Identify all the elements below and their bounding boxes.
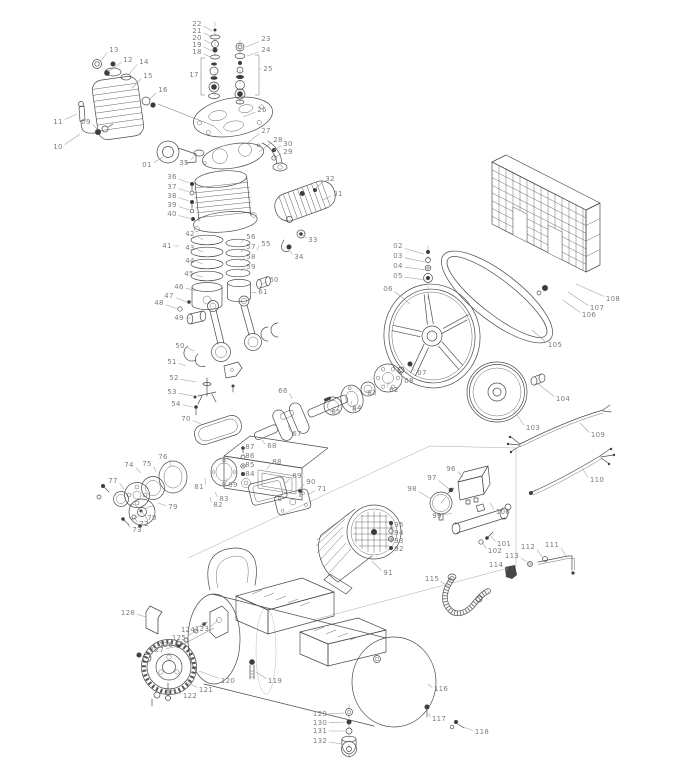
aftercooler — [492, 155, 600, 295]
part-number: 57 — [246, 243, 256, 251]
part-callout-55: 55 — [257, 240, 271, 250]
mounting-plate-lower — [300, 618, 386, 666]
part-callout-86: 86 — [243, 452, 255, 460]
part-number: 123 — [195, 625, 209, 633]
leader-line — [197, 249, 203, 252]
part-callout-27: 27 — [248, 127, 271, 143]
piston-left — [178, 283, 222, 325]
leader-line — [191, 153, 196, 161]
part-number: 122 — [183, 692, 197, 700]
part-callout-01: 01 — [142, 157, 163, 169]
leader-line — [323, 196, 331, 200]
part-callout-43: 43 — [185, 244, 203, 252]
part-number: 12 — [123, 56, 133, 64]
leader-line — [199, 671, 219, 679]
part-number: 77 — [108, 477, 118, 485]
pressure-switch — [458, 466, 490, 504]
parts-diagram-canvas: 0102030405060708091011121314151617181920… — [0, 0, 686, 768]
part-number: 40 — [167, 210, 177, 218]
leader-line — [576, 284, 604, 297]
part-number: 131 — [313, 727, 327, 735]
leader-line — [193, 421, 201, 425]
leader-line — [205, 478, 206, 485]
part-number: 54 — [171, 400, 181, 408]
part-number: 127 — [150, 646, 164, 654]
part-number: 64 — [352, 404, 362, 412]
leader-line — [482, 542, 486, 549]
leader-line — [532, 330, 546, 343]
part-callout-117: 117 — [429, 713, 446, 723]
leader-line — [120, 483, 124, 489]
part-number: 66 — [278, 387, 288, 395]
leader-line — [372, 561, 381, 571]
part-callout-84: 84 — [243, 470, 255, 478]
leader-line — [262, 440, 265, 444]
leader-line — [329, 713, 344, 714]
part-number: 74 — [124, 461, 134, 469]
leader-line — [284, 478, 290, 484]
part-number: 107 — [590, 304, 604, 312]
part-callout-89: 89 — [284, 472, 302, 484]
part-callout-16: 16 — [149, 86, 168, 100]
tank-plug — [425, 705, 430, 718]
part-number: 71 — [317, 485, 327, 493]
part-number: 18 — [192, 48, 202, 56]
leader-line — [179, 198, 189, 202]
part-callout-130: 130 — [313, 719, 345, 727]
leader-line — [246, 41, 259, 47]
motor-lead-wire — [529, 448, 615, 495]
crankshaft — [249, 383, 354, 452]
part-callout-112: 112 — [521, 543, 542, 557]
part-callout-127: 127 — [150, 646, 178, 654]
exploded-view-drawing: 0102030405060708091011121314151617181920… — [0, 0, 686, 768]
part-callout-49: 49 — [174, 314, 191, 322]
leader-line — [204, 47, 212, 51]
head-gasket — [194, 139, 266, 173]
part-number: 98 — [407, 485, 417, 493]
part-number: 27 — [261, 127, 271, 135]
part-callout-109: 109 — [580, 423, 605, 439]
part-number: 31 — [333, 190, 343, 198]
part-number: 88 — [272, 458, 282, 466]
leader-line — [266, 464, 270, 470]
leader-line — [568, 292, 588, 306]
part-number: 59 — [246, 263, 256, 271]
part-number: 36 — [167, 173, 177, 181]
part-callout-119: 119 — [256, 672, 282, 685]
leader-line — [99, 53, 107, 64]
part-number: 95 — [394, 521, 404, 529]
part-callout-26: 26 — [243, 106, 267, 117]
part-number: 34 — [294, 253, 304, 261]
part-number: 09 — [81, 118, 91, 126]
part-number: 29 — [283, 148, 293, 156]
part-number: 114 — [489, 561, 504, 569]
electric-motor — [316, 505, 401, 594]
part-number: 05 — [393, 272, 403, 280]
part-callout-120: 120 — [199, 671, 235, 685]
block-bolts — [190, 182, 195, 221]
part-number: 14 — [139, 58, 149, 66]
leader-line — [290, 393, 292, 399]
part-number: 26 — [257, 106, 267, 114]
cover-plate — [274, 488, 312, 516]
leader-line — [561, 548, 566, 557]
part-callout-95: 95 — [392, 521, 404, 529]
leader-line — [204, 26, 212, 31]
part-number: 121 — [199, 686, 213, 694]
part-number: 43 — [185, 244, 195, 252]
discharge-hose — [445, 574, 488, 613]
part-number: 22 — [192, 20, 202, 28]
part-callout-40: 40 — [167, 210, 192, 219]
leader-line — [513, 409, 524, 426]
part-number: 102 — [488, 547, 502, 555]
part-number: 128 — [121, 609, 135, 617]
leader-line — [537, 550, 542, 558]
leader-line — [419, 492, 431, 500]
part-callout-74: 74 — [124, 461, 141, 473]
leader-line — [179, 216, 192, 220]
leader-line — [405, 267, 426, 270]
leader-line — [179, 207, 189, 211]
part-number: 38 — [167, 192, 177, 200]
part-callout-79: 79 — [158, 503, 178, 511]
part-number: 68 — [267, 442, 277, 450]
leader-line — [179, 363, 186, 366]
part-callout-132: 132 — [313, 737, 342, 745]
part-callout-103: 103 — [513, 409, 540, 432]
caster-assembly — [342, 709, 357, 757]
part-number: 100 — [496, 508, 510, 516]
part-number: 08 — [404, 377, 414, 385]
part-callout-06: 06 — [383, 285, 410, 304]
leader-line — [187, 348, 194, 352]
leader-line — [405, 258, 425, 262]
part-number: 92 — [394, 545, 404, 553]
part-callout-104: 104 — [537, 383, 570, 403]
part-number: 30 — [283, 140, 293, 148]
part-number: 97 — [427, 474, 437, 482]
part-callout-128: 128 — [121, 609, 146, 617]
intake-muffler — [271, 177, 339, 251]
leader-line — [154, 466, 156, 472]
part-number: 01 — [142, 161, 152, 169]
part-number: 67 — [292, 430, 302, 438]
valve-stack-left — [201, 29, 220, 99]
part-callout-05: 05 — [393, 272, 426, 280]
part-number: 10 — [53, 143, 63, 151]
part-number: 111 — [545, 541, 559, 549]
leader-line — [537, 383, 554, 397]
leader-line — [289, 249, 292, 255]
part-number: 96 — [446, 465, 456, 473]
breather-fitting — [157, 141, 196, 163]
part-number: 03 — [393, 252, 403, 260]
part-callout-31: 31 — [323, 190, 343, 200]
leader-line — [248, 134, 259, 144]
part-callout-111: 111 — [545, 541, 566, 556]
part-number: 110 — [590, 476, 604, 484]
leader-line — [259, 143, 271, 153]
leader-line — [250, 292, 256, 293]
part-callout-08: 08 — [401, 373, 414, 385]
part-number: 104 — [556, 395, 571, 403]
part-callout-09: 09 — [81, 118, 98, 130]
part-number: 69 — [228, 481, 238, 489]
part-number: 83 — [219, 495, 229, 503]
leader-line — [137, 614, 146, 617]
leader-line — [329, 722, 345, 723]
part-number: 119 — [268, 677, 282, 685]
part-number: 75 — [142, 460, 152, 468]
leader-line — [183, 405, 193, 407]
part-number: 37 — [167, 183, 177, 191]
part-callout-94: 94 — [392, 529, 404, 537]
part-callout-48: 48 — [154, 299, 178, 309]
part-number: 73 — [132, 526, 142, 534]
leader-line — [149, 93, 156, 101]
leader-line — [439, 481, 449, 490]
part-callout-17: 17 — [189, 71, 202, 79]
part-callout-91: 91 — [372, 561, 393, 577]
part-number: 48 — [154, 299, 164, 307]
mounting-plate-upper — [236, 578, 334, 634]
flywheel — [377, 278, 487, 394]
part-callout-03: 03 — [393, 252, 425, 262]
part-number: 89 — [292, 472, 302, 480]
part-callout-52: 52 — [169, 374, 196, 382]
part-callout-37: 37 — [167, 183, 189, 192]
leader-line — [257, 246, 259, 250]
part-callout-45: 45 — [184, 270, 203, 278]
part-number: 81 — [194, 483, 204, 491]
part-number: 109 — [591, 431, 605, 439]
part-number: 87 — [245, 443, 255, 451]
leader-line — [179, 179, 189, 183]
part-number: 86 — [245, 452, 255, 460]
part-callout-51: 51 — [167, 358, 186, 366]
part-number: 17 — [189, 71, 199, 79]
leader-line — [176, 298, 187, 302]
part-callout-38: 38 — [167, 192, 189, 201]
part-callout-62: 62 — [387, 381, 398, 394]
part-callout-50: 50 — [175, 342, 194, 351]
part-callout-25: 25 — [260, 65, 273, 73]
leader-line — [181, 379, 196, 382]
part-callout-76: 76 — [158, 453, 171, 467]
part-number: 115 — [425, 575, 439, 583]
part-callout-116: 116 — [428, 684, 448, 693]
leader-line — [126, 522, 130, 528]
part-callout-118: 118 — [463, 727, 489, 736]
part-number: 23 — [261, 35, 271, 43]
part-callout-35: 35 — [179, 153, 196, 167]
part-number: 130 — [313, 719, 327, 727]
part-number: 07 — [417, 369, 427, 377]
part-callout-97: 97 — [427, 474, 449, 489]
part-callout-46: 46 — [174, 283, 196, 291]
piston-rings-left — [191, 235, 223, 281]
part-callout-99: 99 — [432, 512, 452, 520]
part-number: 58 — [246, 253, 256, 261]
part-number: 49 — [174, 314, 184, 322]
part-callout-100: 100 — [490, 503, 510, 516]
part-callout-123: 123 — [195, 620, 218, 633]
part-number: 04 — [393, 262, 403, 270]
valve-stack-right — [235, 43, 259, 104]
leader-line — [197, 262, 203, 264]
part-number: 106 — [582, 311, 597, 319]
drain-cock — [450, 720, 464, 729]
part-callout-85: 85 — [243, 461, 255, 469]
part-callout-107: 107 — [568, 292, 604, 312]
leader-line — [65, 134, 80, 145]
part-callout-13: 13 — [99, 46, 119, 63]
part-number: 52 — [169, 374, 179, 382]
leader-line — [197, 236, 203, 240]
part-number: 13 — [109, 46, 119, 54]
part-number: 91 — [383, 569, 393, 577]
leader-line — [211, 620, 218, 627]
connecting-rods — [184, 296, 278, 415]
part-callout-53: 53 — [167, 388, 193, 396]
v-belt — [429, 236, 566, 358]
part-number: 112 — [521, 543, 535, 551]
leader-line — [563, 300, 580, 313]
part-number: 02 — [393, 242, 403, 250]
leader-line — [405, 248, 424, 254]
part-callout-68: 68 — [262, 440, 277, 450]
part-callout-36: 36 — [167, 173, 189, 183]
leader-line — [132, 79, 141, 89]
leader-line — [210, 497, 211, 503]
leader-line — [166, 305, 178, 309]
part-number: 55 — [261, 240, 271, 248]
part-number: 21 — [192, 27, 202, 35]
part-callout-66: 66 — [278, 387, 292, 399]
part-callout-54: 54 — [171, 400, 193, 408]
part-number: 32 — [325, 175, 335, 183]
part-callout-47: 47 — [164, 292, 187, 302]
part-number: 78 — [147, 514, 157, 522]
crankcase-gasket — [192, 413, 244, 447]
leader-line — [463, 727, 473, 731]
part-number: 11 — [53, 118, 63, 126]
part-number: 50 — [175, 342, 185, 350]
part-number: 65 — [331, 408, 341, 416]
part-callout-10: 10 — [53, 134, 80, 151]
part-number: 56 — [246, 233, 256, 241]
part-callout-70: 70 — [181, 415, 201, 424]
part-callout-64: 64 — [350, 401, 362, 412]
part-number: 63 — [367, 389, 377, 397]
leader-line — [204, 33, 212, 37]
part-number: 42 — [185, 230, 195, 238]
part-number: 99 — [432, 512, 442, 520]
part-number: 70 — [181, 415, 191, 423]
leader-line — [179, 189, 189, 193]
part-callout-75: 75 — [142, 460, 156, 472]
leader-line — [429, 713, 430, 717]
part-callout-131: 131 — [313, 727, 345, 735]
part-number: 94 — [394, 529, 404, 537]
part-number: 117 — [432, 715, 446, 723]
part-callout-65: 65 — [331, 407, 341, 416]
part-callout-88: 88 — [266, 458, 282, 470]
motor-pulley — [467, 362, 545, 422]
part-number: 62 — [389, 386, 399, 394]
leader-line — [136, 467, 141, 473]
leader-line — [405, 277, 426, 280]
leader-line — [141, 511, 145, 516]
leader-line — [204, 40, 212, 44]
leader-line — [395, 292, 410, 305]
leader-line — [196, 275, 203, 277]
part-number: 33 — [308, 236, 318, 244]
part-number: 129 — [313, 710, 327, 718]
tank-bolt — [249, 659, 255, 679]
part-number: 53 — [167, 388, 177, 396]
part-number: 44 — [185, 257, 195, 265]
part-number: 46 — [174, 283, 184, 291]
part-callouts: 0102030405060708091011121314151617181920… — [53, 20, 620, 745]
part-number: 103 — [526, 424, 540, 432]
part-callout-57: 57 — [241, 243, 256, 252]
part-number: 61 — [258, 288, 268, 296]
part-number: 93 — [394, 537, 404, 545]
part-number: 108 — [606, 295, 620, 303]
part-callout-41: 41 — [162, 242, 179, 250]
part-number: 20 — [192, 34, 202, 42]
part-callout-71: 71 — [307, 485, 327, 495]
leader-line — [215, 492, 217, 497]
part-callout-61: 61 — [250, 288, 268, 296]
part-number: 116 — [434, 685, 449, 693]
part-callout-44: 44 — [185, 257, 203, 265]
leader-line — [458, 471, 463, 477]
part-callout-04: 04 — [393, 262, 426, 270]
part-number: 35 — [179, 159, 189, 167]
part-number: 51 — [167, 358, 177, 366]
power-cord — [507, 405, 611, 453]
part-number: 79 — [168, 503, 178, 511]
leader-line — [491, 536, 495, 542]
leader-line — [580, 423, 589, 433]
part-callout-92: 92 — [392, 545, 404, 553]
part-number: 19 — [192, 41, 202, 49]
leader-line — [329, 742, 342, 744]
part-callout-108: 108 — [576, 284, 620, 303]
part-callout-110: 110 — [582, 468, 604, 484]
leader-line — [170, 460, 171, 468]
leader-line — [179, 393, 193, 396]
part-number: 118 — [475, 728, 489, 736]
part-number: 105 — [548, 341, 562, 349]
part-callout-39: 39 — [167, 201, 189, 210]
part-callout-87: 87 — [243, 443, 255, 451]
leader-line — [247, 52, 259, 56]
part-number: 25 — [263, 65, 273, 73]
part-callout-129: 129 — [313, 710, 344, 718]
part-callout-15: 15 — [132, 72, 153, 88]
part-callout-96: 96 — [446, 465, 463, 477]
part-number: 06 — [383, 285, 393, 293]
leader-line — [521, 558, 527, 562]
part-number: 28 — [273, 136, 283, 144]
part-callout-98: 98 — [407, 485, 431, 499]
